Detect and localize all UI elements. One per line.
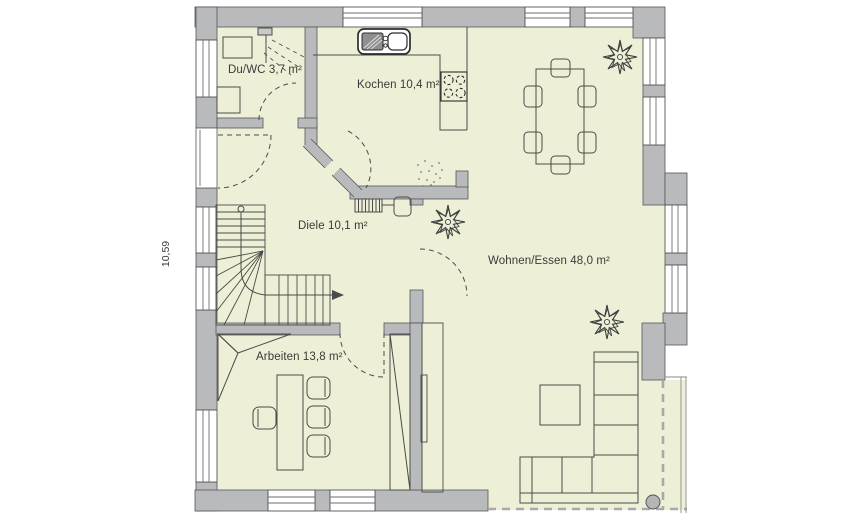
floor-plan-drawing <box>0 0 855 513</box>
shower-head <box>258 28 272 35</box>
room-label-hallway: Diele 10,1 m² <box>298 220 368 232</box>
room-label-shower-wc: Du/WC 3,7 m² <box>228 64 302 76</box>
kitchen-sink <box>358 29 410 54</box>
room-label-kitchen: Kochen 10,4 m² <box>357 79 440 91</box>
dimension-label-left: 10,59 <box>160 241 172 267</box>
entrance-opening <box>196 128 217 188</box>
floor-area <box>216 27 686 510</box>
room-label-office: Arbeiten 13,8 m² <box>256 351 343 363</box>
terrace-column <box>646 495 660 509</box>
room-label-living-dining: Wohnen/Essen 48,0 m² <box>488 255 610 267</box>
floor-plan-page: Du/WC 3,7 m² Kochen 10,4 m² Diele 10,1 m… <box>0 0 855 513</box>
